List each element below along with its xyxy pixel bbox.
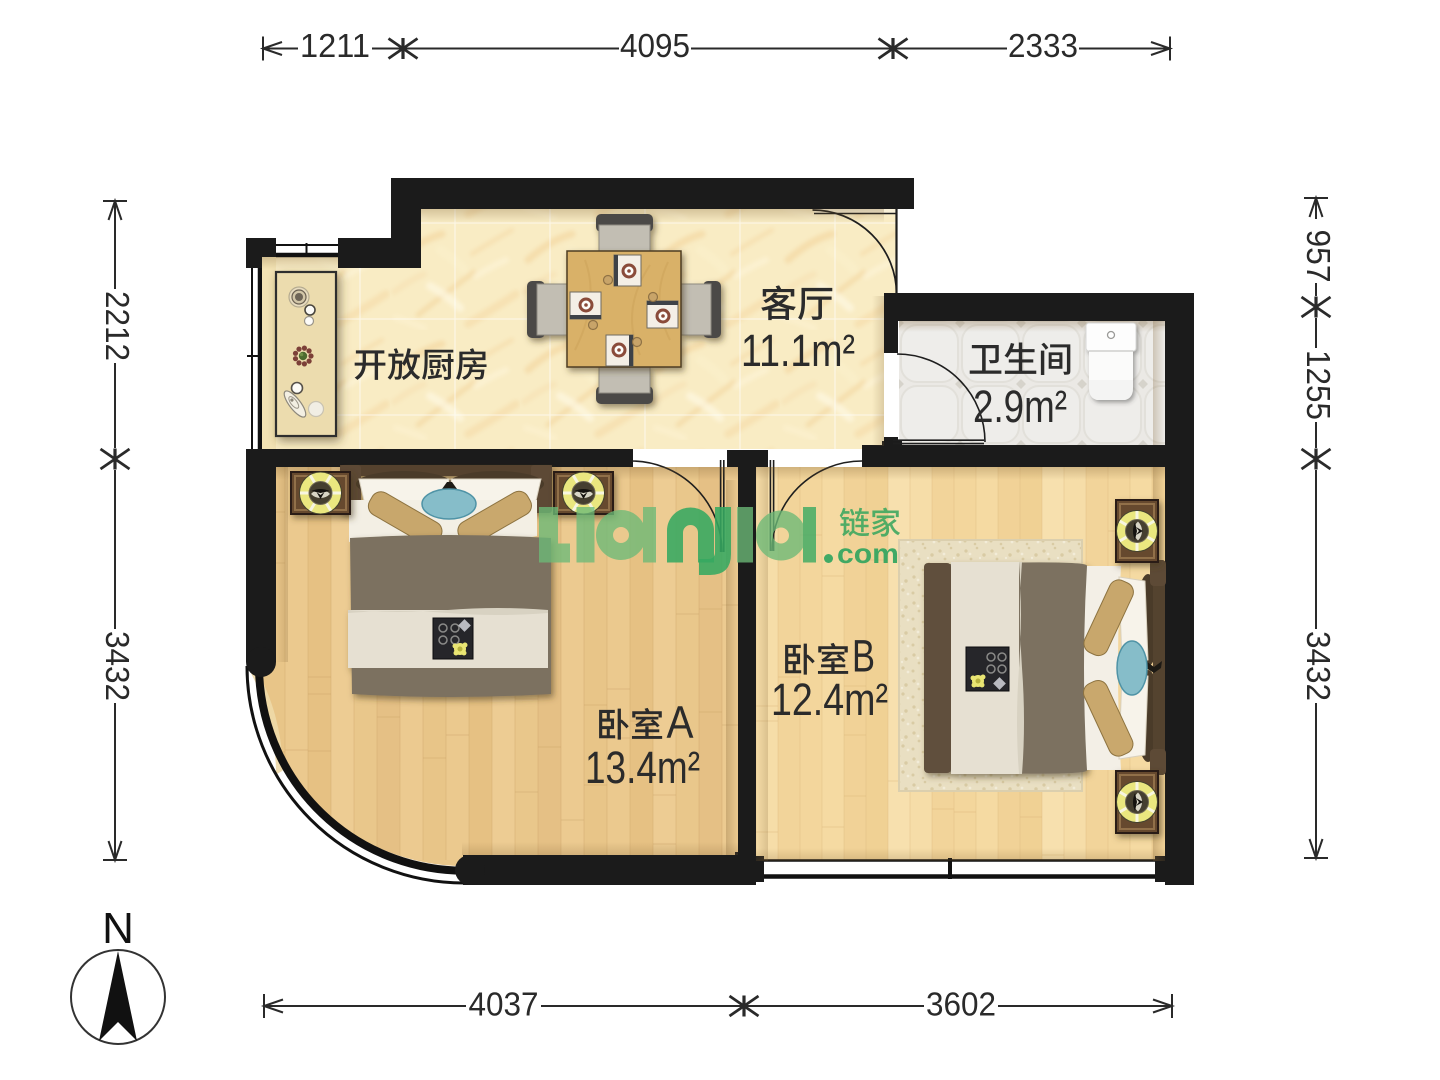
svg-text:4095: 4095: [620, 27, 690, 64]
svg-text:1255: 1255: [1300, 350, 1337, 420]
svg-text:3432: 3432: [1300, 631, 1337, 701]
svg-text:11.1m²: 11.1m²: [741, 325, 855, 376]
svg-text:3432: 3432: [99, 631, 136, 701]
svg-text:A: A: [667, 697, 694, 748]
svg-text:2333: 2333: [1008, 27, 1078, 64]
svg-text:com: com: [837, 538, 899, 569]
svg-text:2.9m²: 2.9m²: [973, 381, 1067, 432]
svg-text:957: 957: [1300, 230, 1337, 283]
svg-text:2212: 2212: [99, 291, 136, 361]
svg-text:13.4m²: 13.4m²: [585, 742, 700, 793]
svg-text:12.4m²: 12.4m²: [771, 674, 888, 725]
svg-text:3602: 3602: [926, 986, 996, 1023]
svg-text:1211: 1211: [300, 27, 370, 64]
svg-text:N: N: [102, 904, 134, 953]
svg-text:4037: 4037: [469, 986, 539, 1023]
